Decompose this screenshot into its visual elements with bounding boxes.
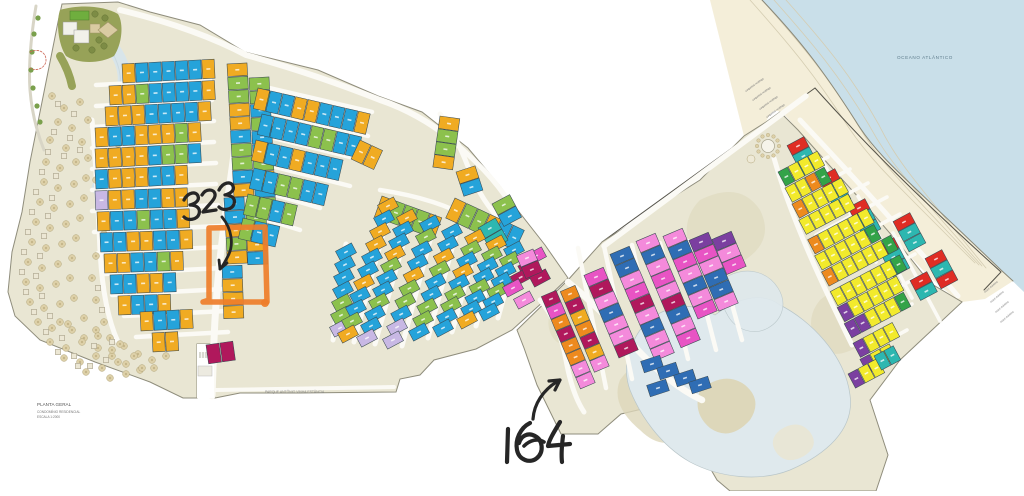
svg-text:ESCALA 1:2000: ESCALA 1:2000: [37, 415, 60, 419]
svg-text:OCEANO ATLÂNTICO: OCEANO ATLÂNTICO: [897, 54, 953, 60]
svg-text:PARQUE ANTÔNIO VINHA ESTÂNCIA: PARQUE ANTÔNIO VINHA ESTÂNCIA: [265, 389, 325, 394]
svg-text:PLANTA GERAL: PLANTA GERAL: [37, 402, 72, 407]
svg-text:CONDOMÍNIO RESIDENCIAL: CONDOMÍNIO RESIDENCIAL: [37, 410, 80, 414]
